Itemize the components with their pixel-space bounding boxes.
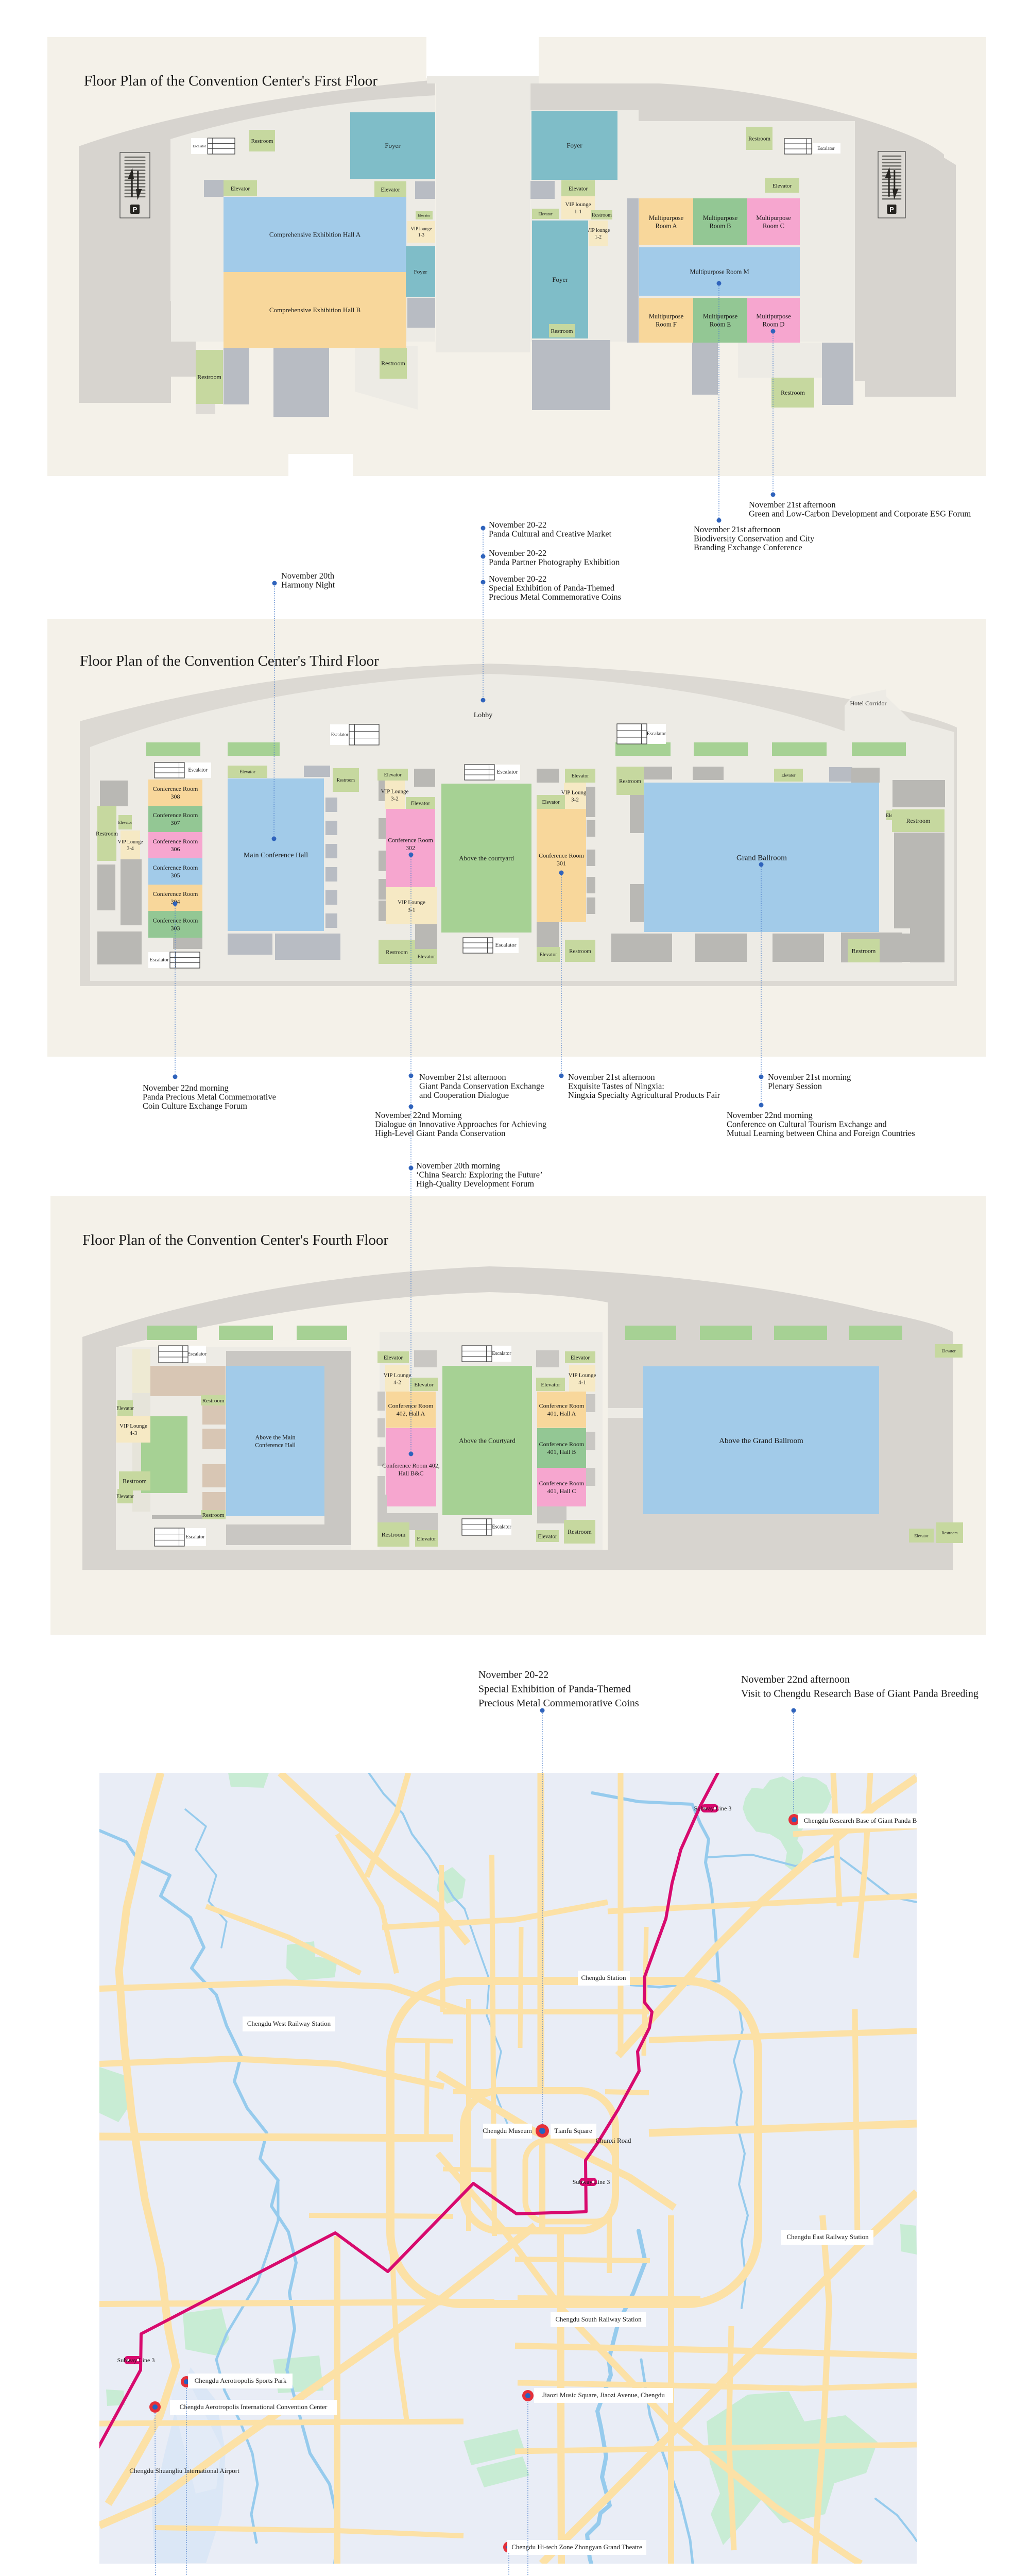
svg-text:Hotel Corridor: Hotel Corridor: [850, 700, 887, 707]
svg-text:High-Quality Development Forum: High-Quality Development Forum: [416, 1179, 534, 1189]
svg-text:Floor Plan of the Convention C: Floor Plan of the Convention Center's Fi…: [84, 73, 377, 89]
svg-text:Elevator: Elevator: [542, 800, 560, 805]
svg-text:November 20-22: November 20-22: [489, 548, 546, 558]
svg-text:Elevator: Elevator: [538, 1533, 557, 1539]
svg-text:Grand Ballroom: Grand Ballroom: [736, 854, 787, 862]
svg-text:3-4: 3-4: [127, 846, 133, 852]
svg-text:Escalator: Escalator: [817, 146, 834, 151]
svg-text:Panda Cultural and Creative Ma: Panda Cultural and Creative Market: [489, 529, 612, 539]
svg-text:Restroom: Restroom: [381, 360, 405, 367]
svg-text:3-2: 3-2: [391, 795, 399, 802]
svg-text:Above the courtyard: Above the courtyard: [459, 854, 514, 862]
svg-text:Restroom: Restroom: [337, 777, 355, 783]
svg-text:Chengdu Hi-tech Zone Zhongyan: Chengdu Hi-tech Zone Zhongyan Grand Thea…: [511, 2543, 642, 2551]
svg-text:Multipurpose: Multipurpose: [703, 313, 738, 320]
svg-text:Conference Room: Conference Room: [153, 864, 198, 871]
svg-text:Elevator: Elevator: [418, 954, 436, 960]
svg-text:1-2: 1-2: [595, 234, 602, 240]
svg-text:3-2: 3-2: [571, 796, 579, 803]
svg-text:1-1: 1-1: [574, 209, 582, 215]
svg-text:Precious Metal Commemorative C: Precious Metal Commemorative Coins: [489, 592, 621, 602]
svg-text:Above the Main: Above the Main: [255, 1434, 296, 1441]
svg-text:Restroom: Restroom: [906, 817, 931, 824]
svg-text:Floor Plan of the Convention C: Floor Plan of the Convention Center's Fo…: [82, 1232, 388, 1248]
svg-text:Room E: Room E: [710, 321, 731, 328]
svg-text:Restroom: Restroom: [748, 135, 770, 142]
svg-text:Escalator: Escalator: [331, 732, 348, 737]
svg-text:1-3: 1-3: [418, 232, 424, 238]
svg-text:VIP Lounge: VIP Lounge: [398, 899, 425, 905]
svg-text:P: P: [133, 206, 138, 213]
svg-text:Restroom: Restroom: [382, 1531, 406, 1538]
svg-text:Conference Room: Conference Room: [153, 811, 198, 819]
svg-text:4-2: 4-2: [393, 1379, 401, 1385]
svg-text:Escalator: Escalator: [193, 144, 207, 148]
svg-text:Room A: Room A: [655, 223, 677, 230]
svg-text:November 22nd morning: November 22nd morning: [727, 1110, 813, 1120]
svg-text:Escalator: Escalator: [492, 1524, 511, 1530]
svg-text:Restroom: Restroom: [781, 389, 805, 396]
svg-text:P: P: [889, 206, 894, 213]
svg-text:November 21st afternoon: November 21st afternoon: [694, 524, 781, 534]
svg-text:Branding Exchange Conference: Branding Exchange Conference: [694, 543, 802, 552]
svg-text:Conference Hall: Conference Hall: [255, 1442, 296, 1449]
svg-text:Above the Courtyard: Above the Courtyard: [459, 1437, 516, 1445]
svg-text:Conference Room: Conference Room: [388, 837, 433, 844]
svg-text:Tianfu Square: Tianfu Square: [554, 2127, 592, 2134]
svg-text:VIP Lounge: VIP Lounge: [561, 789, 589, 795]
svg-text:Conference Room: Conference Room: [539, 1480, 585, 1487]
svg-text:Chengdu West Railway Station: Chengdu West Railway Station: [247, 2020, 331, 2027]
svg-text:Green and Low-Carbon Developme: Green and Low-Carbon Development and Cor…: [749, 509, 971, 519]
svg-text:Restroom: Restroom: [852, 947, 876, 955]
svg-text:302: 302: [406, 844, 415, 852]
svg-text:Biodiversity Conservation and: Biodiversity Conservation and City: [694, 534, 815, 544]
svg-text:Elevator: Elevator: [569, 185, 588, 192]
svg-text:Dialogue on Innovative Approac: Dialogue on Innovative Approaches for Ac…: [375, 1120, 546, 1129]
svg-text:Elevator: Elevator: [914, 1533, 928, 1538]
svg-text:305: 305: [171, 872, 180, 879]
svg-text:VIP Lounge: VIP Lounge: [569, 1372, 596, 1378]
svg-text:November 21st afternoon: November 21st afternoon: [419, 1072, 506, 1082]
svg-text:401, Hall C: 401, Hall C: [547, 1487, 576, 1495]
svg-text:Lobby: Lobby: [474, 711, 493, 719]
svg-text:301: 301: [557, 860, 566, 867]
svg-text:308: 308: [171, 793, 180, 800]
svg-text:Conference Room: Conference Room: [539, 1440, 585, 1448]
svg-text:Elevator: Elevator: [116, 1406, 134, 1412]
svg-text:November 20-22: November 20-22: [478, 1669, 548, 1681]
svg-text:3-1: 3-1: [408, 907, 416, 913]
svg-text:Room C: Room C: [763, 223, 784, 230]
svg-text:Foyer: Foyer: [566, 142, 582, 149]
svg-text:Escalator: Escalator: [149, 957, 169, 963]
svg-text:Elevator: Elevator: [417, 1536, 436, 1542]
svg-text:303: 303: [171, 925, 180, 932]
svg-text:Chengdu Museum: Chengdu Museum: [483, 2127, 532, 2134]
svg-text:Multipurpose: Multipurpose: [649, 313, 684, 320]
svg-text:November 20-22: November 20-22: [489, 574, 546, 584]
svg-text:Chengdu Aerotropolis Internati: Chengdu Aerotropolis International Conve…: [180, 2403, 328, 2411]
svg-text:Elevator: Elevator: [781, 773, 795, 777]
svg-text:Conference Room: Conference Room: [153, 838, 198, 845]
svg-text:4-3: 4-3: [130, 1430, 138, 1436]
svg-text:Escalator: Escalator: [647, 731, 666, 737]
svg-text:Conference Room: Conference Room: [539, 852, 584, 859]
svg-text:VIP lounge: VIP lounge: [587, 228, 610, 233]
svg-text:Escalator: Escalator: [185, 1534, 205, 1540]
svg-text:Multipurpose: Multipurpose: [649, 214, 684, 222]
svg-text:Special Exhibition of Panda-Th: Special Exhibition of Panda-Themed: [478, 1684, 631, 1695]
svg-text:Foyer: Foyer: [385, 142, 401, 149]
svg-text:Elevator: Elevator: [116, 1494, 134, 1500]
svg-text:Visit to Chengdu Research Base: Visit to Chengdu Research Base of Giant …: [741, 1688, 978, 1700]
svg-text:Special Exhibition of Panda-Th: Special Exhibition of Panda-Themed: [489, 583, 615, 593]
svg-text:Subway Line 3: Subway Line 3: [694, 1805, 732, 1812]
svg-text:Elevator: Elevator: [411, 800, 431, 806]
svg-text:Room B: Room B: [709, 223, 731, 230]
svg-text:Floor Plan of the Convention C: Floor Plan of the Convention Center's Th…: [80, 653, 379, 669]
svg-text:Restroom: Restroom: [197, 374, 221, 381]
svg-text:401, Hall A: 401, Hall A: [547, 1410, 576, 1417]
svg-text:Room F: Room F: [656, 321, 677, 328]
svg-text:Hall B&C: Hall B&C: [398, 1470, 423, 1477]
svg-text:Elevator: Elevator: [571, 1354, 590, 1361]
svg-text:VIP lounge: VIP lounge: [411, 226, 432, 231]
svg-text:VIP Lounge: VIP Lounge: [381, 788, 409, 794]
svg-text:Elevator: Elevator: [384, 772, 402, 778]
svg-text:Restroom: Restroom: [569, 948, 591, 954]
svg-text:Elevator: Elevator: [941, 1349, 955, 1353]
svg-text:Escalator: Escalator: [495, 942, 517, 948]
svg-text:Jiaozi Music Square, Jiaozi Av: Jiaozi Music Square, Jiaozi Avenue, Chen…: [542, 2391, 665, 2399]
svg-text:Restroom: Restroom: [251, 138, 273, 144]
svg-text:Conference Room 402,: Conference Room 402,: [382, 1462, 440, 1469]
svg-text:Restroom: Restroom: [386, 949, 408, 955]
svg-text:Escalator: Escalator: [187, 1351, 207, 1357]
svg-text:4-1: 4-1: [578, 1379, 586, 1385]
svg-text:Foyer: Foyer: [414, 269, 427, 275]
svg-text:401, Hall B: 401, Hall B: [547, 1448, 576, 1455]
svg-text:Precious Metal Commemorative C: Precious Metal Commemorative Coins: [478, 1698, 639, 1709]
svg-text:Conference Room: Conference Room: [153, 785, 198, 792]
svg-text:Ningxia Specialty Agricultural: Ningxia Specialty Agricultural Products …: [568, 1090, 720, 1100]
svg-text:Restroom: Restroom: [568, 1528, 592, 1535]
svg-text:Restroom: Restroom: [619, 778, 641, 784]
svg-text:November 20-22: November 20-22: [489, 520, 546, 530]
svg-text:Multipurpose: Multipurpose: [756, 214, 791, 222]
svg-text:Chengdu Research Base of Giant: Chengdu Research Base of Giant Panda Bre…: [804, 1817, 937, 1824]
svg-text:307: 307: [171, 819, 180, 826]
svg-text:Harmony Night: Harmony Night: [281, 580, 335, 590]
svg-text:November 22nd morning: November 22nd morning: [143, 1083, 229, 1093]
svg-text:November 21st afternoon: November 21st afternoon: [568, 1072, 655, 1082]
svg-text:Elevator: Elevator: [384, 1354, 403, 1361]
svg-text:Escalator: Escalator: [497, 769, 518, 775]
svg-text:Panda Partner Photography Exhi: Panda Partner Photography Exhibition: [489, 557, 620, 567]
svg-text:Conference on Cultural Tourism: Conference on Cultural Tourism Exchange …: [727, 1120, 887, 1129]
svg-text:Chunxi Road: Chunxi Road: [596, 2137, 631, 2144]
svg-text:Elevator: Elevator: [381, 187, 400, 193]
svg-text:Mutual Learning between China: Mutual Learning between China and Foreig…: [727, 1128, 915, 1138]
svg-text:Conference Room: Conference Room: [539, 1402, 585, 1410]
svg-text:Restroom: Restroom: [123, 1478, 147, 1485]
svg-text:November 20th morning: November 20th morning: [416, 1161, 500, 1171]
svg-text:Panda Precious Metal Commemora: Panda Precious Metal Commemorative: [143, 1092, 276, 1102]
svg-text:Elevator: Elevator: [538, 212, 552, 216]
svg-text:Comprehensive Exhibition Hall: Comprehensive Exhibition Hall A: [269, 231, 361, 239]
svg-text:Escalator: Escalator: [188, 768, 208, 773]
svg-text:Comprehensive Exhibition Hall: Comprehensive Exhibition Hall B: [269, 306, 361, 314]
svg-text:and Cooperation Dialogue: and Cooperation Dialogue: [419, 1090, 509, 1100]
svg-text:Elevator: Elevator: [541, 1382, 560, 1388]
svg-text:Elevator: Elevator: [231, 185, 250, 192]
svg-text:Multipurpose Room M: Multipurpose Room M: [690, 268, 749, 275]
svg-text:Elevator: Elevator: [118, 820, 132, 825]
svg-text:‘China Search: Exploring the F: ‘China Search: Exploring the Future’: [416, 1170, 543, 1180]
svg-text:Restroom: Restroom: [202, 1398, 225, 1404]
svg-text:Chengdu Shuangliu Internationa: Chengdu Shuangliu International Airport: [129, 2467, 239, 2475]
svg-text:November 22nd Morning: November 22nd Morning: [375, 1110, 462, 1120]
svg-text:Elevator: Elevator: [418, 213, 431, 217]
svg-text:Restroom: Restroom: [941, 1531, 958, 1535]
svg-text:Above the Grand Ballroom: Above the Grand Ballroom: [719, 1437, 803, 1445]
svg-text:Elevator: Elevator: [239, 769, 255, 774]
svg-text:Restroom: Restroom: [202, 1512, 225, 1518]
svg-text:Conference Room: Conference Room: [153, 917, 198, 924]
svg-text:Foyer: Foyer: [552, 276, 568, 283]
svg-text:Exquisite Tastes of Ningxia:: Exquisite Tastes of Ningxia:: [568, 1081, 664, 1091]
svg-text:Giant Panda Conservation Excha: Giant Panda Conservation Exchange: [419, 1081, 544, 1091]
svg-text:Elevator: Elevator: [572, 773, 590, 779]
svg-text:VIP lounge: VIP lounge: [565, 201, 591, 208]
svg-text:Subway Line 3: Subway Line 3: [573, 2178, 610, 2185]
svg-text:VIP Lounge: VIP Lounge: [119, 1423, 147, 1429]
svg-text:VIP Lounge: VIP Lounge: [384, 1372, 411, 1378]
svg-text:Chengdu Station: Chengdu Station: [581, 1974, 626, 1981]
svg-text:Escalator: Escalator: [492, 1351, 511, 1357]
svg-text:Multipurpose: Multipurpose: [756, 313, 791, 320]
svg-text:VIP Lounge: VIP Lounge: [118, 839, 143, 845]
svg-text:Conference Room: Conference Room: [153, 890, 198, 897]
svg-text:Main Conference Hall: Main Conference Hall: [244, 852, 308, 859]
svg-text:Multipurpose: Multipurpose: [703, 214, 738, 222]
svg-text:Chengdu Aerotropolis Sports Pa: Chengdu Aerotropolis Sports Park: [195, 2377, 287, 2384]
svg-text:High-Level Giant Panda Conserv: High-Level Giant Panda Conservation: [375, 1128, 505, 1138]
svg-text:402, Hall A: 402, Hall A: [397, 1410, 425, 1417]
svg-text:Restroom: Restroom: [96, 831, 118, 837]
svg-text:Room D: Room D: [763, 321, 785, 328]
svg-text:Plenary Session: Plenary Session: [768, 1081, 822, 1091]
svg-text:Restroom: Restroom: [551, 328, 573, 334]
svg-text:November 22nd afternoon: November 22nd afternoon: [741, 1674, 850, 1685]
svg-text:Coin Culture Exchange Forum: Coin Culture Exchange Forum: [143, 1101, 247, 1111]
svg-text:November 21st afternoon: November 21st afternoon: [749, 500, 836, 510]
svg-text:Restroom: Restroom: [592, 213, 612, 218]
svg-text:Elevator: Elevator: [772, 183, 792, 189]
svg-text:Subway Line 3: Subway Line 3: [117, 2357, 155, 2364]
svg-text:November 20th: November 20th: [281, 571, 335, 581]
svg-text:Chengdu East Railway Station: Chengdu East Railway Station: [786, 2233, 869, 2241]
svg-text:Elevator: Elevator: [540, 952, 558, 958]
svg-text:Elevator: Elevator: [414, 1382, 434, 1388]
svg-text:306: 306: [171, 845, 180, 853]
svg-text:November 21st morning: November 21st morning: [768, 1072, 851, 1082]
svg-text:Chengdu South Railway Station: Chengdu South Railway Station: [555, 2315, 642, 2323]
